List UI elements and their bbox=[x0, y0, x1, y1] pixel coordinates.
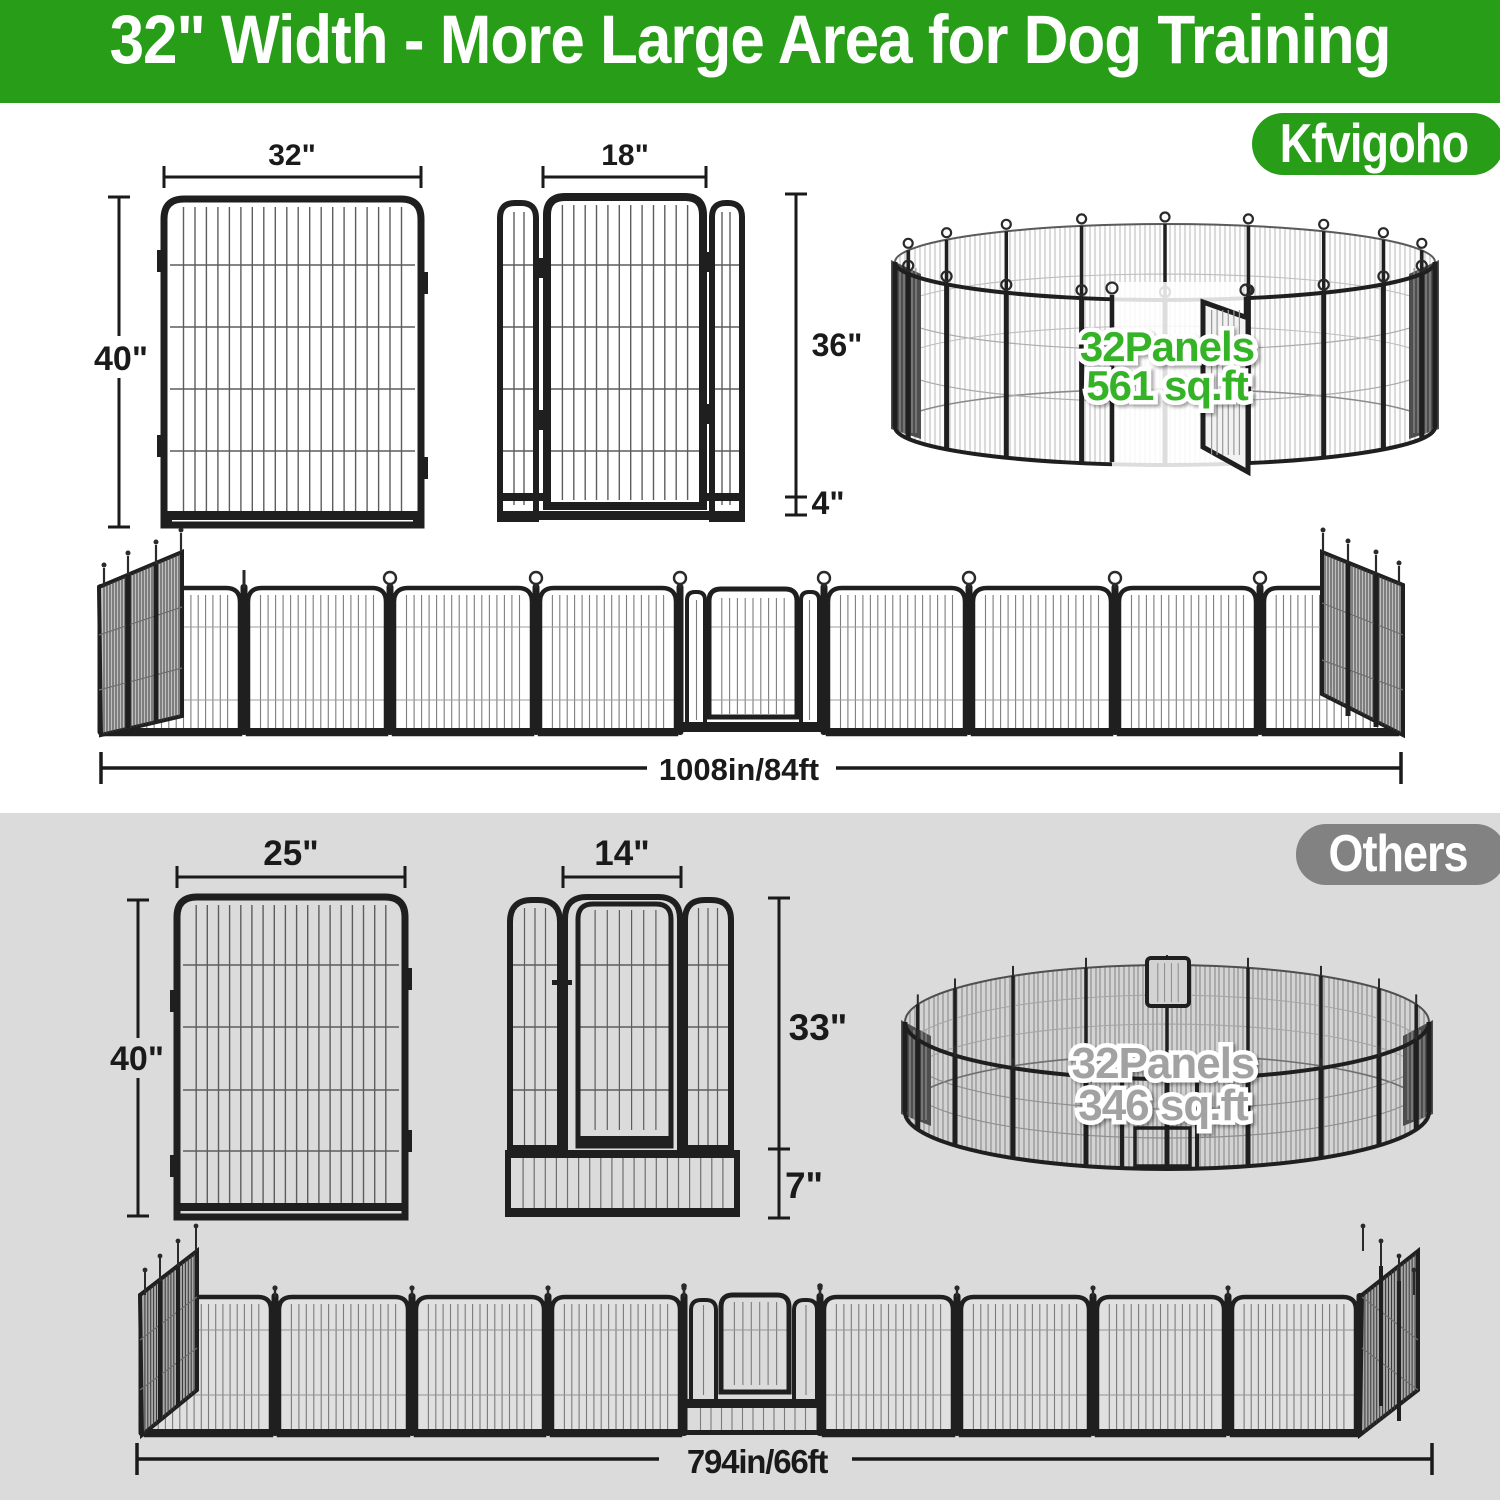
svg-text:14": 14" bbox=[594, 834, 650, 873]
svg-text:Others: Others bbox=[1328, 825, 1467, 883]
svg-text:346 sq.ft: 346 sq.ft bbox=[1078, 1081, 1249, 1130]
svg-text:561 sq.ft: 561 sq.ft bbox=[1086, 362, 1248, 409]
svg-text:25": 25" bbox=[263, 834, 319, 873]
svg-text:Kfvigoho: Kfvigoho bbox=[1280, 113, 1469, 174]
svg-text:4": 4" bbox=[812, 485, 845, 521]
svg-text:33": 33" bbox=[789, 1007, 848, 1048]
svg-text:32": 32" bbox=[268, 139, 316, 172]
svg-text:1008in/84ft: 1008in/84ft bbox=[659, 752, 819, 787]
svg-text:7": 7" bbox=[785, 1165, 823, 1206]
svg-text:40": 40" bbox=[94, 340, 148, 378]
svg-text:794in/66ft: 794in/66ft bbox=[687, 1443, 828, 1480]
svg-text:32" Width - More Large Area fo: 32" Width - More Large Area for Dog Trai… bbox=[110, 1, 1391, 77]
svg-text:18": 18" bbox=[601, 139, 649, 172]
svg-text:36": 36" bbox=[812, 327, 863, 363]
svg-text:40": 40" bbox=[110, 1040, 164, 1078]
